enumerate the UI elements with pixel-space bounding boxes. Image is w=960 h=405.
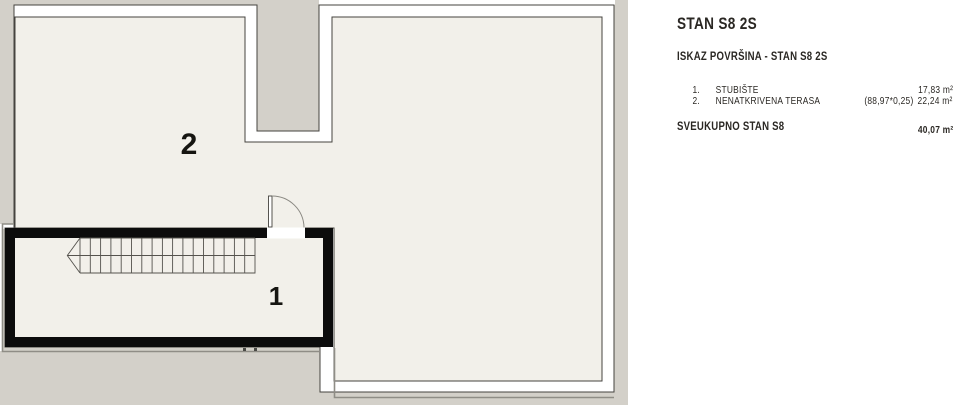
- area-row-2-value: (88,97*0,25)22,24 m²: [849, 83, 953, 119]
- threshold-tick: [254, 348, 257, 351]
- row-number: 2.: [692, 95, 715, 107]
- top-margin-strip: [319, 0, 615, 5]
- floor-plan: 2 1: [0, 0, 628, 405]
- row-name: NENATKRIVENA TERASA: [716, 95, 821, 107]
- page: 2 1 STAN S8 2S ISKAZ POVRŠINA - STAN S8 …: [0, 0, 960, 405]
- room-label-staircase: 1: [269, 281, 283, 311]
- room-label-terrace: 2: [181, 128, 198, 161]
- page-title: STAN S8 2S: [677, 14, 757, 34]
- row-calc: (88,97*0,25): [865, 95, 914, 107]
- threshold-tick: [243, 348, 246, 351]
- area-row-2: 2.NENATKRIVENA TERASA: [677, 83, 820, 119]
- total-value: 40,07 m²: [917, 124, 953, 136]
- door-opening: [267, 228, 305, 239]
- info-panel: STAN S8 2S ISKAZ POVRŠINA - STAN S8 2S 1…: [628, 0, 960, 405]
- area-table-title: ISKAZ POVRŠINA - STAN S8 2S: [677, 49, 828, 63]
- row-value: 22,24 m²: [918, 95, 953, 107]
- total-label: SVEUKUPNO STAN S8: [677, 119, 784, 133]
- door-leaf: [269, 196, 273, 227]
